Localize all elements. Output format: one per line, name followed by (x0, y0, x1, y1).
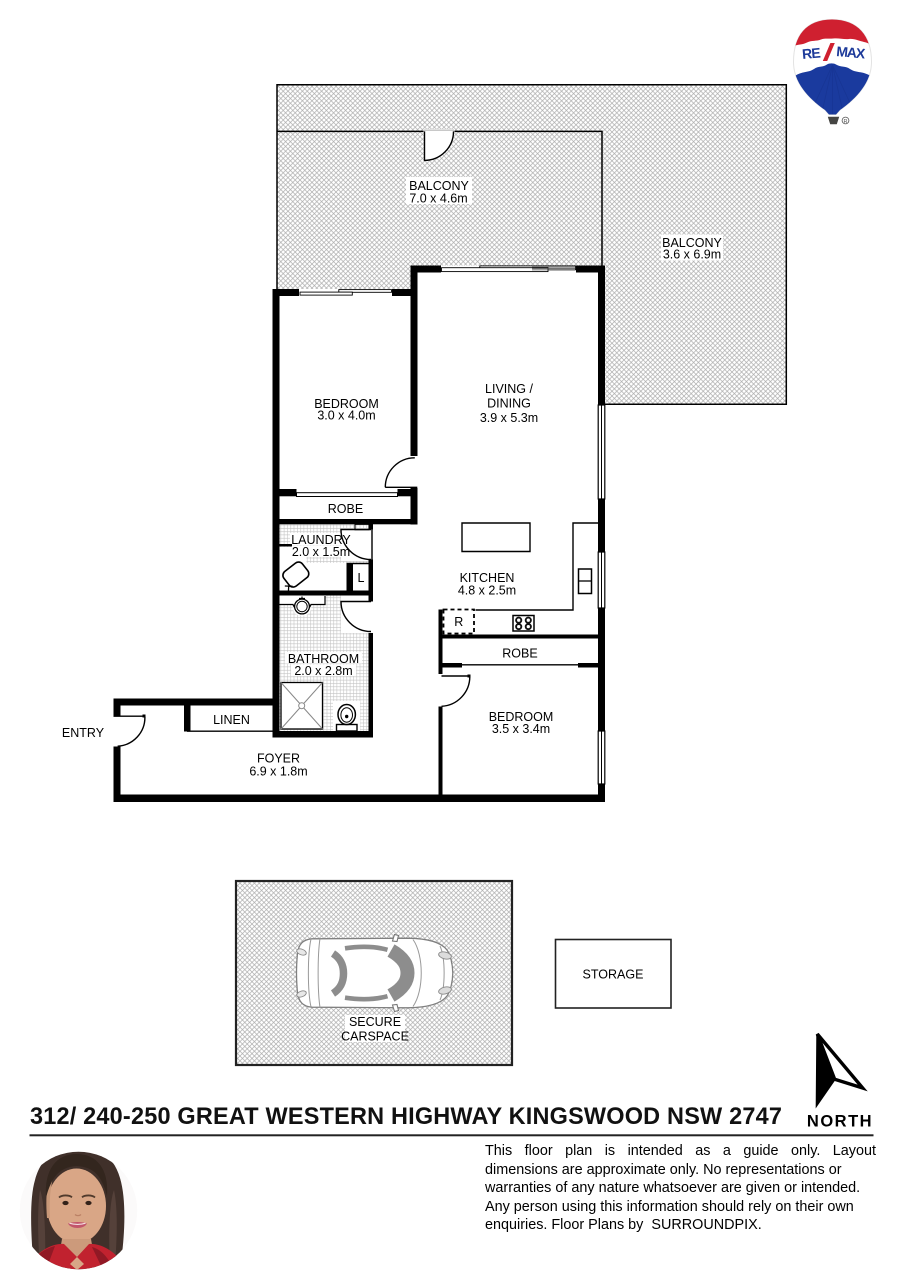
svg-text:MAX: MAX (836, 43, 867, 62)
svg-text:CARSPACE: CARSPACE (341, 1030, 409, 1044)
svg-text:RE: RE (801, 44, 821, 62)
svg-text:2.0 x 2.8m: 2.0 x 2.8m (294, 664, 352, 678)
svg-text:NORTH: NORTH (807, 1113, 873, 1131)
svg-text:FOYER: FOYER (257, 752, 300, 766)
svg-text:3.6 x 6.9m: 3.6 x 6.9m (663, 248, 721, 262)
svg-text:ROBE: ROBE (502, 647, 537, 661)
svg-text:6.9 x 1.8m: 6.9 x 1.8m (249, 765, 307, 779)
svg-text:R: R (844, 119, 848, 125)
svg-text:3.9 x 5.3m: 3.9 x 5.3m (480, 411, 538, 425)
svg-text:2.0 x 1.5m: 2.0 x 1.5m (292, 545, 350, 559)
svg-text:7.0 x 4.6m: 7.0 x 4.6m (409, 192, 467, 206)
svg-text:R: R (454, 615, 463, 629)
svg-text:L: L (358, 571, 365, 585)
svg-text:STORAGE: STORAGE (583, 968, 644, 982)
svg-text:4.8 x 2.5m: 4.8 x 2.5m (458, 584, 516, 598)
svg-text:LINEN: LINEN (213, 713, 250, 727)
svg-text:3.5 x 3.4m: 3.5 x 3.4m (492, 722, 550, 736)
svg-text:LIVING /: LIVING / (485, 382, 533, 396)
svg-text:3.0 x 4.0m: 3.0 x 4.0m (317, 409, 375, 423)
svg-text:SECURE: SECURE (349, 1015, 401, 1029)
svg-text:ROBE: ROBE (328, 502, 363, 516)
svg-text:DINING: DINING (487, 397, 531, 411)
svg-text:ENTRY: ENTRY (62, 726, 105, 740)
